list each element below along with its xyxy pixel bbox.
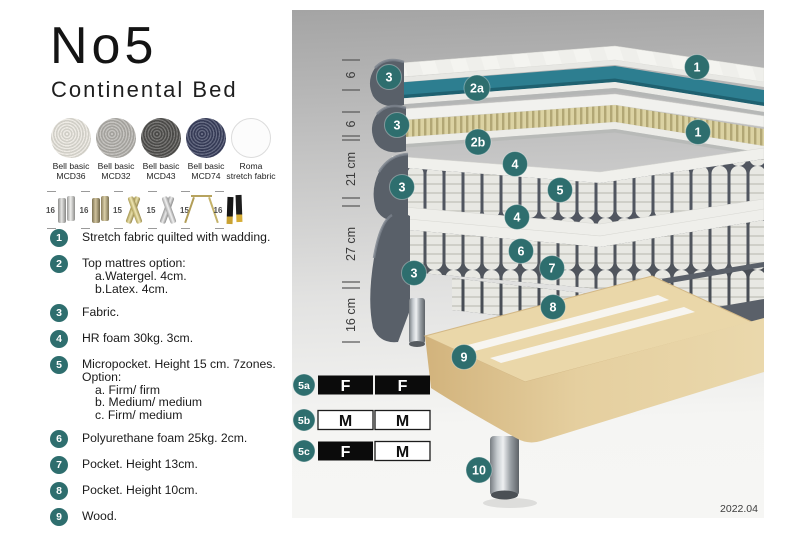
leg-icon: [158, 195, 179, 225]
feature-number-badge: 7: [50, 456, 68, 474]
callout-5: 5: [548, 178, 573, 203]
fabric-swatch-item: Roma stretch fabric: [231, 118, 271, 181]
svg-text:3: 3: [394, 119, 401, 133]
fabric-swatch-item: Bell basic MCD32: [96, 118, 136, 181]
callout-2a: 2a: [464, 75, 490, 101]
svg-text:2a: 2a: [470, 82, 485, 96]
feature-text-block: Fabric.: [82, 306, 119, 322]
feature-text: HR foam 30kg. 3cm.: [82, 332, 193, 345]
callout-8: 8: [541, 295, 566, 320]
feature-text: Fabric.: [82, 306, 119, 319]
svg-text:9: 9: [461, 351, 468, 365]
feature-text: Micropocket. Height 15 cm. 7zones. Optio…: [82, 358, 288, 384]
front-metal-leg: [490, 436, 519, 500]
svg-text:M: M: [339, 413, 352, 430]
svg-text:1: 1: [695, 126, 702, 140]
leg-shadow: [483, 498, 537, 508]
feature-text: Pocket. Height 13cm.: [82, 458, 198, 471]
callout-10: 10: [466, 457, 492, 483]
svg-text:3: 3: [386, 71, 393, 85]
page-title: No5: [50, 16, 157, 76]
dimension-ruler: 6 6 21 cm 27 cm 16 cm: [342, 60, 360, 342]
back-metal-leg: [409, 298, 425, 344]
leg-icon: [91, 195, 112, 225]
fabric-swatch-circle: [96, 118, 136, 158]
callout-9: 9: [452, 345, 477, 370]
feature-text-block: Stretch fabric quilted with wadding.: [82, 231, 270, 247]
fabric-name: Bell basic MCD74: [188, 162, 225, 181]
callout-6: 6: [509, 239, 534, 264]
leg-height-value: 16: [46, 206, 57, 215]
callout-3: 3: [377, 65, 402, 90]
svg-text:8: 8: [550, 301, 557, 315]
callout-2b: 2b: [465, 129, 491, 155]
leg-option: 15: [147, 191, 181, 229]
svg-text:6: 6: [518, 245, 525, 259]
svg-text:4: 4: [514, 211, 521, 225]
fabric-swatch-circle: [51, 118, 91, 158]
feature-text-block: Micropocket. Height 15 cm. 7zones. Optio…: [82, 358, 288, 423]
svg-text:5b: 5b: [298, 415, 310, 427]
fabric-name-line2: MCD74: [188, 172, 225, 182]
page-subtitle: Continental Bed: [51, 77, 238, 103]
feature-list: 1 Stretch fabric quilted with wadding. 2…: [50, 231, 288, 533]
fabric-name: Roma stretch fabric: [226, 162, 275, 181]
feature-sublist: a. Firm/ firm b. Medium/ medium c. Firm/…: [82, 384, 288, 423]
fabric-name-line2: MCD36: [53, 172, 90, 182]
fabric-name-line2: MCD43: [143, 172, 180, 182]
leg-height-value: 16: [214, 206, 225, 215]
left-column: No5 Continental Bed Bell basic MCD36 Bel…: [0, 0, 292, 533]
callout-3: 3: [402, 261, 427, 286]
feature-text: Wood.: [82, 510, 117, 523]
feature-number-badge: 5: [50, 356, 68, 374]
leg-height-value: 16: [80, 206, 91, 215]
leg-icon: [57, 195, 78, 225]
feature-item: 1 Stretch fabric quilted with wadding.: [50, 231, 288, 247]
feature-subline: c. Firm/ medium: [95, 409, 288, 422]
feature-item: 2 Top mattres option: a.Watergel. 4cm. b…: [50, 257, 288, 296]
callout-4: 4: [505, 205, 530, 230]
callout-7: 7: [540, 256, 565, 281]
leg-icon: [225, 195, 246, 225]
svg-text:M: M: [396, 444, 409, 461]
leg-option: 15: [113, 191, 147, 229]
feature-text: Top mattres option:: [82, 257, 187, 270]
feature-item: 5 Micropocket. Height 15 cm. 7zones. Opt…: [50, 358, 288, 423]
firmness-row-5a: 5a F F: [293, 374, 430, 396]
feature-item: 3 Fabric.: [50, 306, 288, 322]
callout-4: 4: [503, 152, 528, 177]
leg-icon: [124, 195, 145, 225]
callout-1: 1: [685, 55, 710, 80]
fabric-name-line2: stretch fabric: [226, 172, 275, 182]
leg-option: 16: [214, 191, 248, 229]
dim-label-16cm: 16 cm: [344, 298, 358, 332]
fabric-name: Bell basic MCD43: [143, 162, 180, 181]
leg-icon: [191, 195, 212, 225]
svg-text:3: 3: [411, 267, 418, 281]
leg-option: 16: [80, 191, 114, 229]
feature-text-block: Pocket. Height 13cm.: [82, 458, 198, 474]
leg-height-value: 15: [113, 206, 124, 215]
version-label: 2022.04: [720, 503, 758, 515]
fabric-swatch-item: Bell basic MCD74: [186, 118, 226, 181]
svg-text:3: 3: [399, 181, 406, 195]
feature-item: 4 HR foam 30kg. 3cm.: [50, 332, 288, 348]
fabric-swatch-item: Bell basic MCD36: [51, 118, 91, 181]
fabric-swatch-row: Bell basic MCD36 Bell basic MCD32 Be: [51, 118, 271, 181]
feature-subline: b.Latex. 4cm.: [95, 283, 187, 296]
feature-text-block: Pocket. Height 10cm.: [82, 484, 198, 500]
feature-text: Pocket. Height 10cm.: [82, 484, 198, 497]
dim-label-21cm: 21 cm: [344, 152, 358, 186]
fabric-name: Bell basic MCD32: [98, 162, 135, 181]
svg-text:F: F: [341, 378, 351, 395]
feature-subline: a.Watergel. 4cm.: [95, 270, 187, 283]
callout-1: 1: [686, 120, 711, 145]
leg-options-row: 16 16 15 15 15: [46, 191, 247, 229]
svg-text:5a: 5a: [298, 380, 310, 392]
feature-text-block: Wood.: [82, 510, 117, 526]
firmness-table: 5a F F 5b M M 5c F M: [293, 374, 430, 462]
feature-item: 8 Pocket. Height 10cm.: [50, 484, 288, 500]
feature-text: Stretch fabric quilted with wadding.: [82, 231, 270, 244]
feature-sublist: a.Watergel. 4cm. b.Latex. 4cm.: [82, 270, 187, 296]
bed-diagram-panel: 6 6 21 cm 27 cm 16 cm: [292, 10, 764, 518]
fabric-name-line2: MCD32: [98, 172, 135, 182]
feature-number-badge: 9: [50, 508, 68, 526]
fabric-swatch-circle: [231, 118, 271, 158]
firmness-row-5c: 5c F M: [293, 440, 430, 462]
svg-text:F: F: [398, 378, 408, 395]
bed-diagram-svg: 6 6 21 cm 27 cm 16 cm: [292, 10, 764, 518]
svg-text:F: F: [341, 444, 351, 461]
feature-number-badge: 8: [50, 482, 68, 500]
leg-option: 16: [46, 191, 80, 229]
svg-text:1: 1: [694, 61, 701, 75]
leg-option: 15: [180, 191, 214, 229]
callout-3: 3: [390, 175, 415, 200]
dim-label-6-second: 6: [344, 120, 358, 127]
feature-item: 6 Polyurethane foam 25kg. 2cm.: [50, 432, 288, 448]
svg-text:4: 4: [512, 158, 519, 172]
svg-text:10: 10: [472, 464, 486, 478]
feature-item: 7 Pocket. Height 13cm.: [50, 458, 288, 474]
feature-number-badge: 3: [50, 304, 68, 322]
feature-number-badge: 2: [50, 255, 68, 273]
leg-height-value: 15: [147, 206, 158, 215]
svg-text:5: 5: [557, 184, 564, 198]
feature-number-badge: 6: [50, 430, 68, 448]
svg-text:M: M: [396, 413, 409, 430]
fabric-name: Bell basic MCD36: [53, 162, 90, 181]
feature-text: Polyurethane foam 25kg. 2cm.: [82, 432, 247, 445]
feature-item: 9 Wood.: [50, 510, 288, 526]
feature-text-block: Polyurethane foam 25kg. 2cm.: [82, 432, 247, 448]
firmness-row-5b: 5b M M: [293, 409, 430, 431]
fabric-swatch-circle: [141, 118, 181, 158]
svg-text:2b: 2b: [471, 136, 486, 150]
feature-number-badge: 4: [50, 330, 68, 348]
dim-label-27cm: 27 cm: [344, 227, 358, 261]
callout-3: 3: [385, 113, 410, 138]
fabric-swatch-item: Bell basic MCD43: [141, 118, 181, 181]
svg-text:5c: 5c: [298, 446, 310, 458]
dim-label-6-top: 6: [344, 71, 358, 78]
spec-sheet-page: No5 Continental Bed Bell basic MCD36 Bel…: [0, 0, 800, 533]
feature-number-badge: 1: [50, 229, 68, 247]
feature-text-block: HR foam 30kg. 3cm.: [82, 332, 193, 348]
fabric-swatch-circle: [186, 118, 226, 158]
feature-text-block: Top mattres option: a.Watergel. 4cm. b.L…: [82, 257, 187, 296]
svg-text:7: 7: [549, 262, 556, 276]
